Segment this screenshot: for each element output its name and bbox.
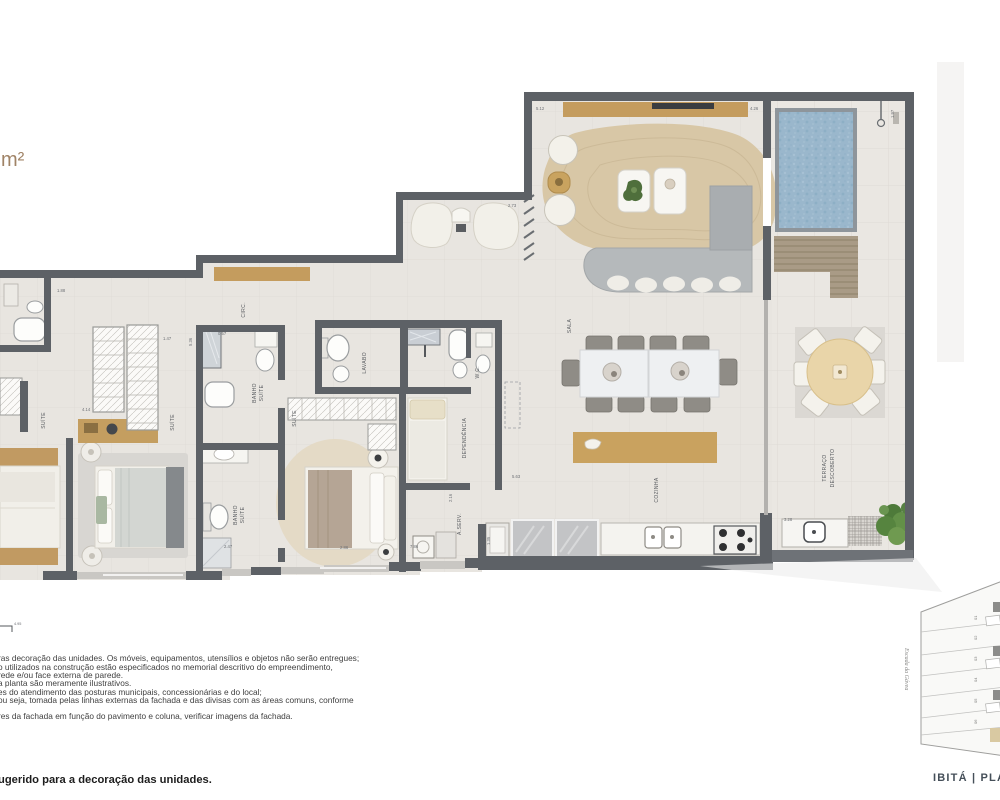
svg-text:SALA: SALA bbox=[567, 319, 573, 334]
svg-text:2.86: 2.86 bbox=[340, 545, 349, 550]
svg-text:SUÍTE: SUÍTE bbox=[258, 384, 265, 401]
svg-text:1.47: 1.47 bbox=[163, 336, 172, 341]
svg-text:4.95: 4.95 bbox=[14, 622, 21, 626]
svg-text:5.12: 5.12 bbox=[536, 106, 545, 111]
svg-text:ou seja, tomada pelas linhas e: ou seja, tomada pelas linhas externas da… bbox=[0, 695, 354, 705]
svg-text:01: 01 bbox=[973, 615, 978, 620]
svg-text:06: 06 bbox=[973, 719, 978, 724]
svg-text:SUÍTE: SUÍTE bbox=[239, 506, 246, 523]
svg-text:COZINHA: COZINHA bbox=[654, 477, 660, 503]
svg-text:DEPENDÊNCIA: DEPENDÊNCIA bbox=[460, 417, 468, 458]
svg-text:BANHO: BANHO bbox=[252, 383, 258, 403]
svg-text:BANHO: BANHO bbox=[233, 505, 239, 525]
svg-text:ugerido para a decoração das u: ugerido para a decoração das unidades. bbox=[0, 774, 212, 786]
svg-text:1.35: 1.35 bbox=[486, 536, 491, 545]
svg-text:1.88: 1.88 bbox=[57, 288, 66, 293]
svg-text:Escada da Gávea: Escada da Gávea bbox=[903, 647, 909, 690]
svg-text:A.SERV.: A.SERV. bbox=[457, 513, 463, 535]
svg-text:DESCOBERTO: DESCOBERTO bbox=[830, 449, 836, 488]
svg-text:1.97: 1.97 bbox=[890, 109, 895, 118]
svg-text:SUÍTE: SUÍTE bbox=[169, 414, 176, 431]
svg-text:IBITÁ | PLANT: IBITÁ | PLANT bbox=[933, 771, 1000, 784]
svg-text:3.28: 3.28 bbox=[784, 517, 793, 522]
svg-text:TERRAÇO: TERRAÇO bbox=[822, 454, 828, 481]
svg-text:res da fachada em função do pa: res da fachada em função do pavimento e … bbox=[0, 711, 293, 721]
svg-text:SUÍTE: SUÍTE bbox=[291, 410, 298, 427]
svg-text:2.73: 2.73 bbox=[508, 203, 517, 208]
svg-text:02: 02 bbox=[973, 635, 978, 640]
svg-text:0.57: 0.57 bbox=[218, 331, 227, 336]
svg-text:W.C.: W.C. bbox=[475, 366, 481, 378]
svg-text:03: 03 bbox=[973, 656, 978, 661]
svg-text:2.47: 2.47 bbox=[224, 544, 233, 549]
svg-text:SUÍTE: SUÍTE bbox=[40, 412, 47, 429]
svg-text:7.86: 7.86 bbox=[410, 544, 419, 549]
svg-text:05: 05 bbox=[973, 698, 978, 703]
svg-text:4.14: 4.14 bbox=[82, 407, 91, 412]
svg-text:m²: m² bbox=[1, 149, 25, 171]
svg-text:LAVABO: LAVABO bbox=[362, 352, 368, 374]
svg-text:CIRC.: CIRC. bbox=[241, 302, 247, 318]
svg-text:4.26: 4.26 bbox=[750, 106, 759, 111]
svg-text:04: 04 bbox=[973, 677, 978, 682]
svg-text:5.63: 5.63 bbox=[512, 474, 521, 479]
svg-text:5.36: 5.36 bbox=[188, 337, 193, 346]
svg-text:2.16: 2.16 bbox=[448, 493, 453, 502]
